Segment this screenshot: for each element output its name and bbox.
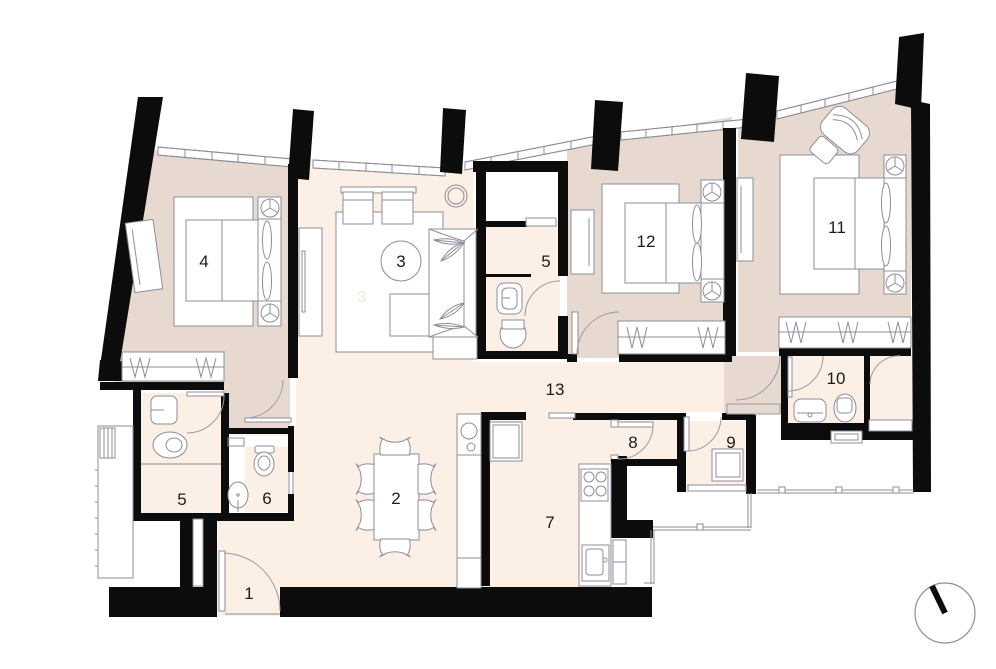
svg-text:12: 12: [637, 232, 656, 251]
svg-text:3: 3: [358, 289, 367, 306]
svg-text:3: 3: [396, 252, 405, 271]
svg-text:6: 6: [262, 489, 271, 508]
svg-text:5: 5: [177, 490, 186, 509]
svg-text:10: 10: [827, 369, 846, 388]
svg-text:4: 4: [199, 252, 208, 271]
svg-text:11: 11: [828, 218, 846, 237]
svg-text:7: 7: [545, 513, 554, 532]
svg-text:1: 1: [244, 584, 253, 603]
svg-text:13: 13: [546, 380, 565, 399]
svg-text:8: 8: [628, 433, 637, 452]
svg-text:9: 9: [726, 433, 735, 452]
svg-text:5: 5: [541, 252, 550, 271]
svg-text:2: 2: [391, 489, 400, 508]
